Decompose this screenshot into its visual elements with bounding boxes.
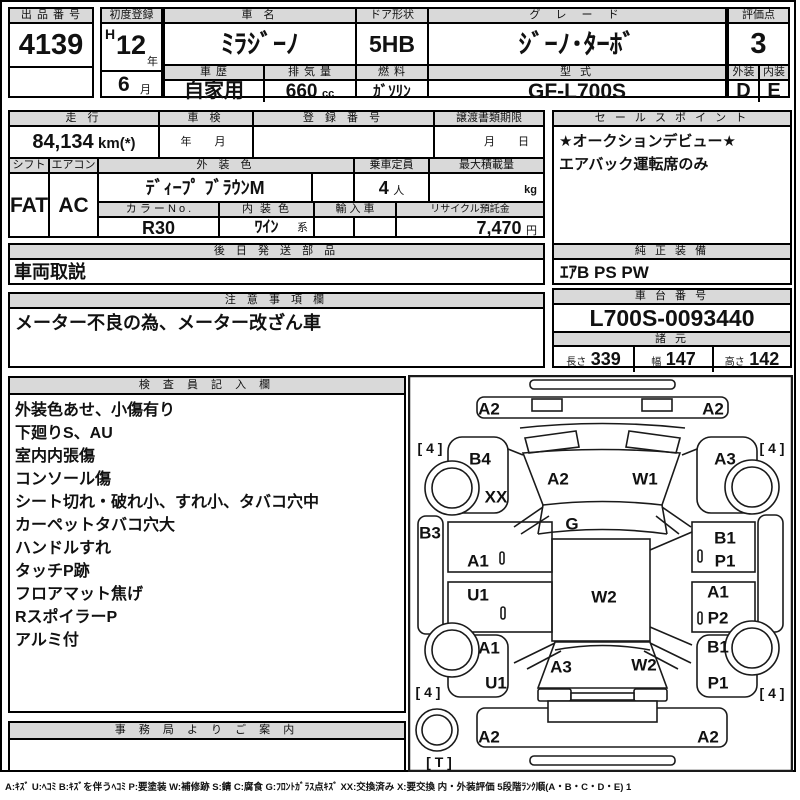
- damage-marker: W2: [631, 657, 657, 674]
- damage-marker: A3: [550, 659, 572, 676]
- int-color-label: 内 装 色: [220, 203, 313, 218]
- model-label: 型 式: [429, 66, 725, 81]
- max-load-label: 最大積載量: [430, 159, 543, 174]
- damage-marker: A2: [547, 471, 569, 488]
- recycle-value: 7,470: [477, 218, 522, 238]
- interior-label: 内装: [760, 66, 788, 81]
- int-color-suffix: 系: [297, 218, 308, 238]
- spec-length-label: 長さ: [566, 357, 586, 368]
- chassis-value: L700S-0093440: [554, 305, 790, 333]
- sales-point-label: セ ー ル ス ポ イ ン ト: [554, 112, 790, 127]
- inspector-line: コンソール傷: [10, 468, 404, 491]
- displacement-cell: 排 気 量 660 cc: [263, 66, 355, 102]
- ext-color-value: ﾃﾞｨｰﾌﾟ ﾌﾞﾗｳﾝM: [99, 174, 311, 203]
- auction-no-empty-cell: [10, 68, 92, 100]
- car-name-label: 車 名: [165, 9, 355, 24]
- caution-label: 注 意 事 項 欄: [10, 294, 543, 309]
- damage-marker: P2: [708, 610, 729, 627]
- damage-marker: [ 4 ]: [760, 441, 785, 455]
- auction-no-value: 4139: [10, 24, 92, 68]
- reg-no-label: 登 録 番 号: [254, 112, 433, 127]
- genuine-equip-label: 純 正 装 備: [554, 245, 790, 260]
- max-load-unit: kg: [524, 184, 537, 196]
- inspector-label: 検 査 員 記 入 欄: [10, 378, 404, 395]
- chassis-label: 車 台 番 号: [554, 290, 790, 305]
- score-box: 評価点 3 外装 D 内装 E: [727, 7, 790, 98]
- shaken-label: 車 検: [160, 112, 252, 127]
- shift-value: FAT: [10, 174, 48, 238]
- ext-color-box: 外 装 色 ﾃﾞｨｰﾌﾟ ﾌﾞﾗｳﾝM: [97, 157, 355, 203]
- car-name-box: 車 名 ﾐﾗｼﾞｰﾉ 車 歴 自家用 排 気 量 660 cc: [163, 7, 357, 98]
- color-no-value: R30: [99, 218, 218, 238]
- shaken-value: 年 月: [160, 127, 252, 158]
- auction-no-box: 出 品 番 号 4139: [8, 7, 94, 98]
- inspector-line: 外装色あせ、小傷有り: [10, 399, 404, 422]
- sales-point-line: ★オークションデビュー★: [554, 130, 790, 153]
- transfer-value: 月 日: [435, 127, 543, 158]
- history-value: 自家用: [165, 81, 263, 102]
- displacement-value: 660: [286, 81, 318, 102]
- spec-height-label: 高さ: [725, 357, 745, 368]
- mileage-value-wrap: 84,134 km(*): [10, 127, 158, 159]
- first-reg-box: 初度登録 H 12 年 6 月: [100, 7, 163, 98]
- grade-label: グ レ ー ド: [429, 9, 725, 24]
- damage-marker: [ 4 ]: [418, 441, 443, 455]
- mileage-label: 走 行: [10, 112, 158, 127]
- interior-grade: E: [760, 81, 788, 102]
- displacement-unit: cc: [322, 88, 334, 100]
- chassis-box: 車 台 番 号 L700S-0093440 諸 元 長さ 339 幅 147 高…: [552, 288, 792, 368]
- mileage-box: 走 行 84,134 km(*): [8, 110, 160, 159]
- damage-marker: A1: [467, 553, 489, 570]
- inspector-line: フロアマット焦げ: [10, 583, 404, 606]
- damage-marker: A2: [702, 401, 724, 418]
- ext-color-label: 外 装 色: [99, 159, 353, 174]
- inspector-line: 室内内張傷: [10, 445, 404, 468]
- first-reg-month: 6: [118, 73, 130, 97]
- import-label: 輸 入 車: [315, 203, 395, 218]
- mileage-unit: km(*): [98, 135, 136, 152]
- reg-no-box: 登 録 番 号: [252, 110, 435, 159]
- recycle-unit: 円: [526, 225, 537, 237]
- inspector-line: アルミ付: [10, 629, 404, 652]
- first-reg-month-suffix: 月: [140, 81, 151, 97]
- damage-marker: A2: [697, 729, 719, 746]
- import-cell-right: [353, 218, 395, 238]
- import-cell-left: [315, 218, 353, 238]
- exterior-cell: 外装 D: [729, 66, 758, 102]
- exterior-label: 外装: [729, 66, 758, 81]
- first-reg-era: H: [105, 26, 115, 42]
- later-parts-label: 後 日 発 送 部 品: [10, 245, 543, 260]
- fuel-value: ｶﾞｿﾘﾝ: [357, 81, 427, 102]
- damage-marker: P1: [715, 553, 736, 570]
- later-parts-box: 後 日 発 送 部 品 車両取説: [8, 243, 545, 285]
- damage-marker: A1: [478, 640, 500, 657]
- spec-width-cell: 幅 147: [633, 347, 712, 372]
- spec-width-label: 幅: [651, 357, 661, 368]
- first-reg-year-cell: H 12 年: [102, 24, 161, 72]
- capacity-box: 乗車定員 4 人: [353, 157, 430, 203]
- damage-marker: G: [565, 516, 578, 533]
- shift-box: シフト FAT: [8, 157, 50, 238]
- first-reg-label: 初度登録: [102, 9, 161, 24]
- door-box: ドア形状 5HB 燃 料 ｶﾞｿﾘﾝ: [355, 7, 429, 98]
- damage-marker: U1: [467, 587, 489, 604]
- caution-value: メーター不良の為、メーター改ざん車: [10, 309, 543, 337]
- door-value: 5HB: [357, 24, 427, 64]
- grade-box: グ レ ー ド ｼﾞｰﾉ･ﾀｰﾎﾞ 型 式 GF-L700S: [427, 7, 727, 98]
- aircon-label: エアコン: [50, 159, 97, 174]
- office-label: 事 務 局 よ り ご 案 内: [10, 723, 404, 740]
- genuine-equip-box: 純 正 装 備 ｴｱB PS PW: [552, 243, 792, 285]
- color-no-label: カ ラ ー N o .: [99, 203, 218, 218]
- inspector-line: ハンドルすれ: [10, 537, 404, 560]
- caution-box: 注 意 事 項 欄 メーター不良の為、メーター改ざん車: [8, 292, 545, 368]
- legend-text: A:ｷｽﾞ U:ﾍｺﾐ B:ｷｽﾞを伴うﾍｺﾐ P:要塗装 W:補修跡 S:錆 …: [5, 779, 797, 793]
- damage-marker: [ 4 ]: [760, 686, 785, 700]
- transfer-box: 譲渡書類期限 月 日: [433, 110, 545, 159]
- auction-no-label: 出 品 番 号: [10, 9, 92, 24]
- damage-marker: B1: [707, 639, 729, 656]
- damage-marker: W2: [591, 589, 617, 606]
- max-load-box: 最大積載量 kg: [428, 157, 545, 203]
- transfer-label: 譲渡書類期限: [435, 112, 543, 127]
- damage-marker: W1: [632, 471, 658, 488]
- sales-point-line: エアバック運転席のみ: [554, 153, 790, 176]
- damage-marker: B4: [469, 451, 491, 468]
- recycle-label: リサイクル預託金: [397, 203, 543, 218]
- score-value: 3: [729, 24, 788, 64]
- grade-value: ｼﾞｰﾉ･ﾀｰﾎﾞ: [429, 24, 725, 64]
- model-value: GF-L700S: [429, 81, 725, 102]
- specs-label: 諸 元: [554, 333, 790, 347]
- damage-diagram: A2A2[ 4 ]B4A3[ 4 ]XXA2W1GB3A1U1W2B1P1A1P…: [408, 375, 793, 772]
- capacity-unit: 人: [393, 185, 404, 197]
- spec-height-value: 142: [749, 349, 779, 369]
- recycle-value-wrap: 7,470 円: [397, 218, 543, 241]
- damage-marker: A2: [478, 729, 500, 746]
- damage-marker: P1: [708, 675, 729, 692]
- later-parts-value: 車両取説: [10, 260, 543, 285]
- displacement-label: 排 気 量: [265, 66, 355, 81]
- spec-height-cell: 高さ 142: [712, 347, 790, 372]
- damage-marker: B1: [714, 530, 736, 547]
- history-label: 車 歴: [165, 66, 263, 81]
- int-color-box: 内 装 色 ﾜｲﾝ 系: [218, 201, 315, 238]
- exterior-grade: D: [729, 81, 758, 102]
- shift-label: シフト: [10, 159, 48, 174]
- genuine-equip-value: ｴｱB PS PW: [554, 260, 790, 285]
- capacity-value: 4: [379, 178, 389, 198]
- shaken-box: 車 検 年 月: [158, 110, 254, 159]
- mileage-value: 84,134: [32, 131, 93, 153]
- spec-width-value: 147: [666, 349, 696, 369]
- int-color-value: ﾜｲﾝ: [254, 219, 278, 236]
- damage-marker: A1: [707, 584, 729, 601]
- inspector-line: 下廻りS、AU: [10, 422, 404, 445]
- car-name-value: ﾐﾗｼﾞｰﾉ: [165, 24, 355, 64]
- auction-sheet: 出 品 番 号 4139 初度登録 H 12 年 6 月 車 名 ﾐﾗｼﾞｰﾉ …: [0, 0, 800, 800]
- first-reg-year: 12: [116, 30, 146, 61]
- displacement-value-wrap: 660 cc: [265, 81, 355, 105]
- spec-length-value: 339: [591, 349, 621, 369]
- inspector-line: RスポイラーP: [10, 606, 404, 629]
- inspector-line: シート切れ・破れ小、すれ小、タバコ穴中: [10, 491, 404, 514]
- aircon-box: エアコン AC: [48, 157, 99, 238]
- damage-marker: [ T ]: [426, 755, 452, 769]
- fuel-label: 燃 料: [357, 66, 427, 81]
- inspector-line: カーペットタバコ穴大: [10, 514, 404, 537]
- interior-cell: 内装 E: [758, 66, 788, 102]
- damage-marker: XX: [485, 489, 508, 506]
- ext-color-empty-cell: [311, 174, 353, 203]
- damage-marker: [ 4 ]: [416, 685, 441, 699]
- damage-marker: U1: [485, 675, 507, 692]
- first-reg-year-suffix: 年: [147, 53, 158, 69]
- damage-marker: A3: [714, 451, 736, 468]
- sales-point-box: セ ー ル ス ポ イ ン ト ★オークションデビュー★ エアバック運転席のみ: [552, 110, 792, 245]
- inspector-line: タッチP跡: [10, 560, 404, 583]
- damage-marker-layer: A2A2[ 4 ]B4A3[ 4 ]XXA2W1GB3A1U1W2B1P1A1P…: [408, 375, 793, 772]
- inspector-box: 検 査 員 記 入 欄 外装色あせ、小傷有り 下廻りS、AU 室内内張傷 コンソ…: [8, 376, 406, 713]
- import-box: 輸 入 車: [313, 201, 397, 238]
- aircon-value: AC: [50, 174, 97, 238]
- color-no-box: カ ラ ー N o . R30: [97, 201, 220, 238]
- int-color-value-wrap: ﾜｲﾝ 系: [220, 218, 313, 238]
- spec-length-cell: 長さ 339: [554, 347, 633, 372]
- office-box: 事 務 局 よ り ご 案 内: [8, 721, 406, 772]
- first-reg-month-cell: 6 月: [102, 72, 161, 100]
- capacity-label: 乗車定員: [355, 159, 428, 174]
- damage-marker: A2: [478, 401, 500, 418]
- recycle-box: リサイクル預託金 7,470 円: [395, 201, 545, 238]
- damage-marker: B3: [419, 525, 441, 542]
- history-cell: 車 歴 自家用: [165, 66, 263, 102]
- door-label: ドア形状: [357, 9, 427, 24]
- score-label: 評価点: [729, 9, 788, 24]
